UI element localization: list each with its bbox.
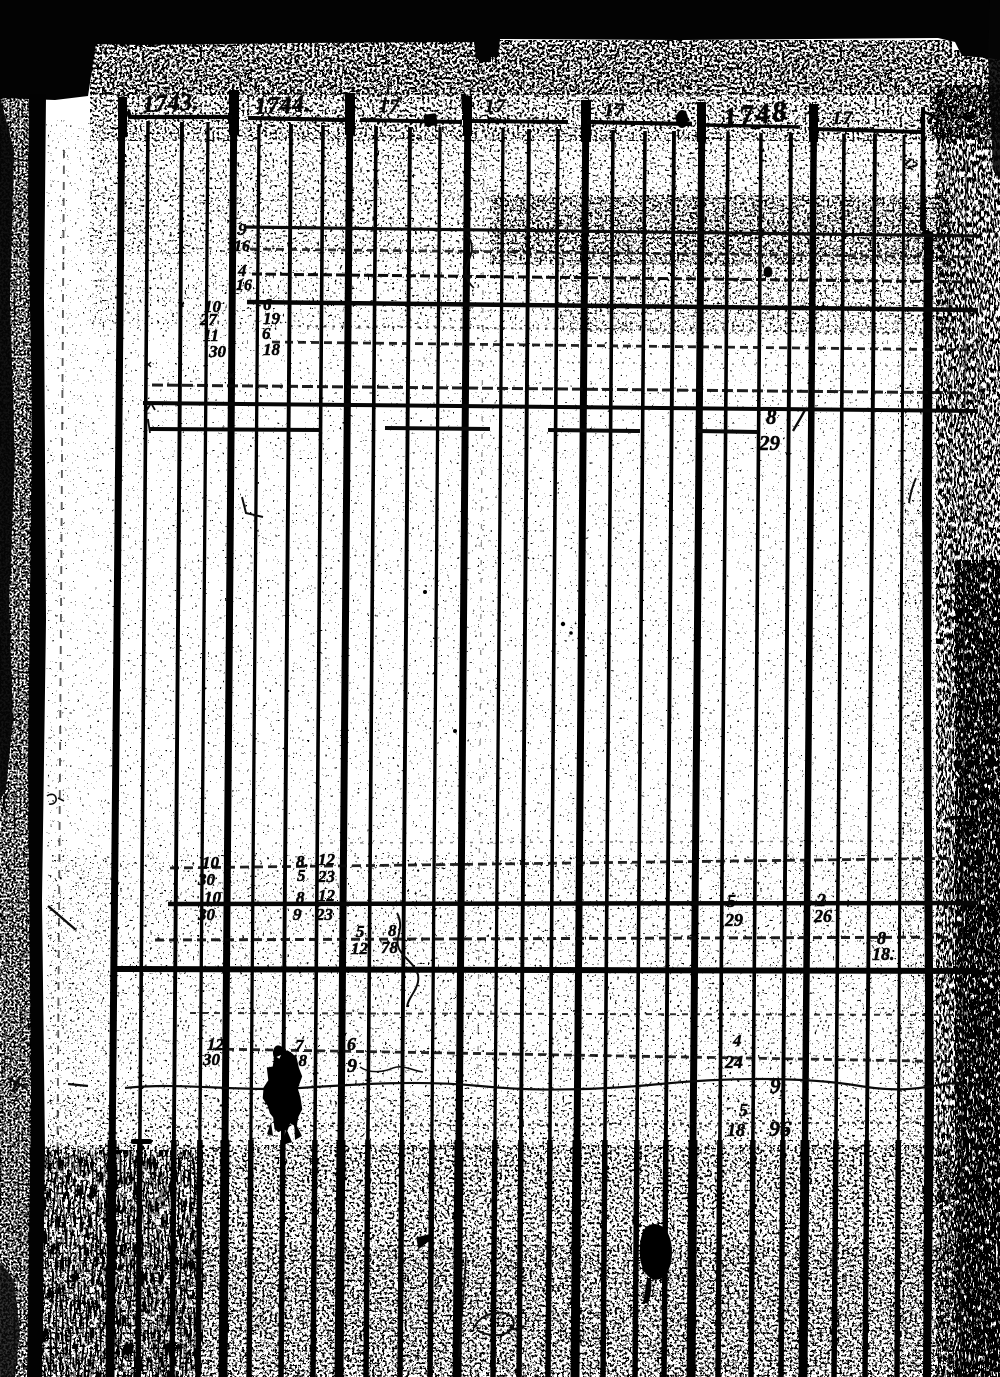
- svg-text:18: 18: [263, 340, 281, 359]
- svg-text:23: 23: [317, 867, 336, 886]
- svg-text:24: 24: [724, 1052, 743, 1072]
- svg-text:9: 9: [347, 1055, 357, 1077]
- svg-text:29: 29: [724, 910, 743, 930]
- svg-text:6: 6: [347, 1034, 356, 1054]
- svg-text:16: 16: [236, 277, 252, 294]
- svg-text:96: 96: [769, 1116, 791, 1141]
- svg-text:5: 5: [739, 1100, 748, 1120]
- svg-text:30: 30: [197, 905, 216, 924]
- svg-text:5: 5: [297, 866, 306, 885]
- svg-text:18.: 18.: [872, 944, 895, 964]
- svg-text:26: 26: [813, 906, 832, 926]
- svg-text:29: 29: [758, 431, 781, 455]
- svg-text:9: 9: [293, 905, 302, 924]
- svg-text:1744.: 1744.: [254, 91, 312, 120]
- svg-text:23: 23: [315, 905, 334, 924]
- svg-text:30: 30: [202, 1050, 221, 1069]
- svg-text:78: 78: [381, 938, 399, 957]
- svg-text:12,: 12,: [351, 939, 372, 958]
- svg-text:1743.: 1743.: [142, 89, 200, 118]
- svg-text:9,: 9,: [770, 1074, 786, 1098]
- svg-text:30: 30: [208, 342, 227, 361]
- svg-text:17: 17: [604, 100, 626, 121]
- svg-text:17: 17: [379, 96, 401, 117]
- svg-text:8: 8: [766, 405, 777, 429]
- svg-text:9: 9: [238, 220, 247, 239]
- svg-text:16: 16: [234, 238, 250, 255]
- svg-text:4: 4: [732, 1031, 742, 1050]
- svg-text:17: 17: [485, 96, 507, 117]
- svg-text:5: 5: [727, 891, 736, 911]
- svg-text:18: 18: [727, 1120, 745, 1140]
- svg-text:17: 17: [832, 108, 854, 129]
- svg-text:30: 30: [197, 870, 216, 889]
- svg-text:9.: 9.: [936, 1187, 950, 1207]
- svg-text:12: 12: [318, 886, 336, 905]
